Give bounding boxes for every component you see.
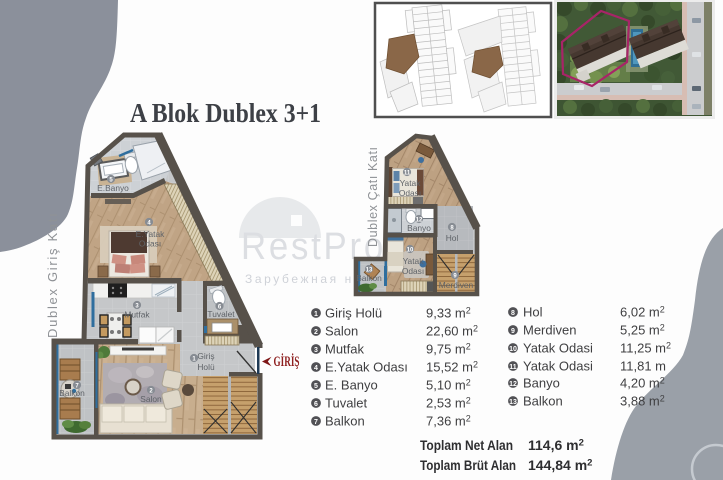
svg-text:11,81 m: 11,81 m: [620, 359, 666, 374]
svg-text:Holü: Holü: [197, 362, 215, 372]
svg-text:Merdiven: Merdiven: [439, 280, 474, 290]
svg-text:E.Yatak Odası: E.Yatak Odası: [325, 360, 408, 375]
svg-text:Dublex Giriş Katı: Dublex Giriş Katı: [45, 212, 60, 338]
svg-text:Yatak Odasi: Yatak Odasi: [523, 359, 593, 374]
svg-text:Yatak: Yatak: [400, 178, 422, 188]
svg-text:Balkon: Balkon: [523, 394, 563, 409]
svg-text:Giriş Holü: Giriş Holü: [325, 306, 382, 321]
svg-text:Balkon: Balkon: [325, 414, 365, 429]
svg-text:Odası: Odası: [399, 188, 421, 198]
svg-text:4: 4: [314, 365, 318, 372]
svg-text:114,6 m2: 114,6 m2: [528, 437, 584, 453]
svg-text:Tuvalet: Tuvalet: [207, 309, 235, 319]
svg-text:9: 9: [511, 328, 515, 335]
svg-text:Salon: Salon: [325, 324, 358, 339]
svg-text:Mutfak: Mutfak: [325, 342, 365, 357]
svg-text:1: 1: [314, 311, 318, 318]
svg-text:144,84 m2: 144,84 m2: [528, 457, 592, 473]
svg-text:7,36 m2: 7,36 m2: [426, 414, 471, 429]
svg-text:22,60 m2: 22,60 m2: [426, 324, 478, 339]
svg-text:6: 6: [314, 401, 318, 408]
svg-text:Salon: Salon: [140, 394, 162, 404]
svg-text:Balkon: Balkon: [59, 388, 85, 398]
svg-text:Odası: Odası: [402, 266, 424, 276]
svg-text:7: 7: [314, 419, 318, 426]
svg-text:Dublex Çatı Katı: Dublex Çatı Katı: [366, 146, 380, 247]
svg-text:Toplam Brüt Alan: Toplam Brüt Alan: [420, 457, 516, 473]
svg-text:9,33 m2: 9,33 m2: [426, 306, 471, 321]
svg-text:Balkon: Balkon: [356, 273, 382, 283]
svg-text:Banyo: Banyo: [407, 223, 431, 233]
svg-text:Yatak Odasi: Yatak Odasi: [523, 341, 593, 356]
svg-text:E.Banyo: E.Banyo: [97, 183, 129, 193]
svg-text:2: 2: [314, 329, 318, 336]
svg-text:5,25 m2: 5,25 m2: [620, 323, 665, 338]
svg-text:Toplam Net Alan: Toplam Net Alan: [420, 437, 513, 453]
svg-text:12: 12: [509, 381, 517, 388]
svg-text:A Blok Dublex 3+1: A Blok Dublex 3+1: [130, 98, 321, 128]
svg-text:Tuvalet: Tuvalet: [325, 396, 368, 411]
svg-text:11: 11: [404, 171, 411, 177]
svg-text:3,88 m2: 3,88 m2: [620, 394, 665, 409]
svg-text:6,02 m2: 6,02 m2: [620, 305, 665, 320]
svg-text:8: 8: [511, 310, 515, 317]
svg-text:Odası: Odası: [139, 239, 161, 249]
svg-text:5,10 m2: 5,10 m2: [426, 378, 471, 393]
svg-text:15,52 m2: 15,52 m2: [426, 360, 478, 375]
svg-text:Giriş: Giriş: [197, 351, 214, 361]
svg-text:Mutfak: Mutfak: [124, 310, 150, 320]
svg-text:13: 13: [509, 399, 517, 406]
svg-text:3: 3: [314, 347, 318, 354]
svg-text:Hol: Hol: [446, 233, 459, 243]
svg-text:11: 11: [509, 364, 517, 371]
svg-text:Merdiven: Merdiven: [523, 323, 576, 338]
svg-text:Yatak: Yatak: [403, 256, 425, 266]
svg-text:Banyo: Banyo: [523, 376, 560, 391]
svg-text:5: 5: [314, 383, 318, 390]
svg-text:2,53 m2: 2,53 m2: [426, 396, 471, 411]
svg-text:GİRİŞ: GİRİŞ: [274, 353, 300, 370]
svg-text:4,20 m2: 4,20 m2: [620, 376, 665, 391]
svg-text:Hol: Hol: [523, 305, 543, 320]
svg-text:10: 10: [509, 346, 517, 353]
svg-text:10: 10: [407, 248, 414, 254]
svg-text:9,75 m2: 9,75 m2: [426, 342, 471, 357]
svg-text:E.Yatak: E.Yatak: [136, 229, 166, 239]
svg-text:E. Banyo: E. Banyo: [325, 378, 378, 393]
svg-text:11,25 m2: 11,25 m2: [620, 341, 671, 356]
